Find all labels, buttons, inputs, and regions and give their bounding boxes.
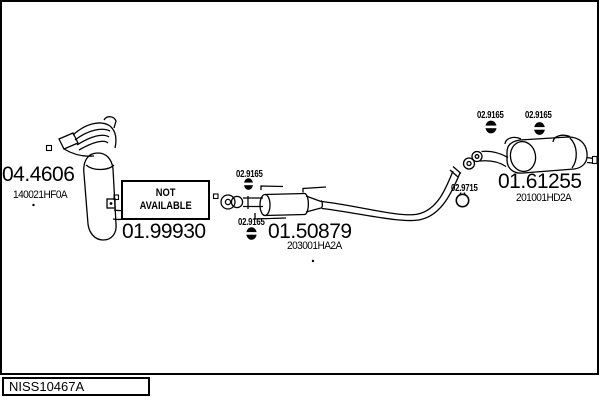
- gasket-price-code: 02.9715: [451, 183, 478, 194]
- catalyst-canister: [84, 153, 116, 240]
- speck: [312, 260, 314, 262]
- hanger-icon: [246, 227, 257, 240]
- diagram-id-box: NISS10467A: [2, 377, 150, 396]
- rear-silencer-oem-number: 201001HD2A: [516, 192, 571, 204]
- flange-marker: [47, 146, 52, 151]
- parts-diagram-screen: 04.4606 140021HF0A NOT AVAILABLE 01.9993…: [0, 0, 600, 400]
- hanger-price-code: 02.9165: [477, 110, 504, 121]
- joint-ring: [472, 152, 482, 162]
- diagram-id: NISS10467A: [4, 379, 84, 394]
- speck: [32, 204, 34, 206]
- flange-marker: [214, 194, 219, 199]
- rear-silencer-price-code: 01.61255: [498, 170, 582, 194]
- hanger-icon: [534, 122, 546, 135]
- hanger-price-code: 02.9165: [236, 169, 263, 180]
- bracket: [261, 186, 283, 190]
- hanger-price-code: 02.9165: [525, 110, 552, 121]
- not-available-line1: NOT: [156, 187, 176, 200]
- hanger-icon: [485, 121, 497, 134]
- muffler-seam: [570, 138, 576, 168]
- resonator-left-cap: [260, 195, 270, 216]
- not-available-line2: AVAILABLE: [139, 200, 191, 213]
- tailpipe-tip: [593, 157, 598, 164]
- exhaust-diagram-art: [0, 0, 600, 400]
- catalyst-oem-number: 140021HF0A: [13, 189, 67, 201]
- center-silencer-oem-number: 203001HA2A: [287, 240, 342, 252]
- inlet-flange: [221, 195, 235, 209]
- bracket: [303, 187, 326, 193]
- catalyst-price-code: 04.4606: [2, 163, 74, 187]
- gasket-ring-icon: [456, 193, 468, 207]
- front-pipe-price-code: 01.99930: [122, 220, 206, 244]
- rear-silencer-drawing: [480, 135, 597, 173]
- not-available-box: NOT AVAILABLE: [121, 180, 210, 220]
- pipe-collar: [453, 167, 461, 174]
- hanger-price-code: 02.9165: [238, 217, 265, 228]
- hook-bracket: [553, 135, 570, 142]
- muffler-left-face: [508, 140, 538, 174]
